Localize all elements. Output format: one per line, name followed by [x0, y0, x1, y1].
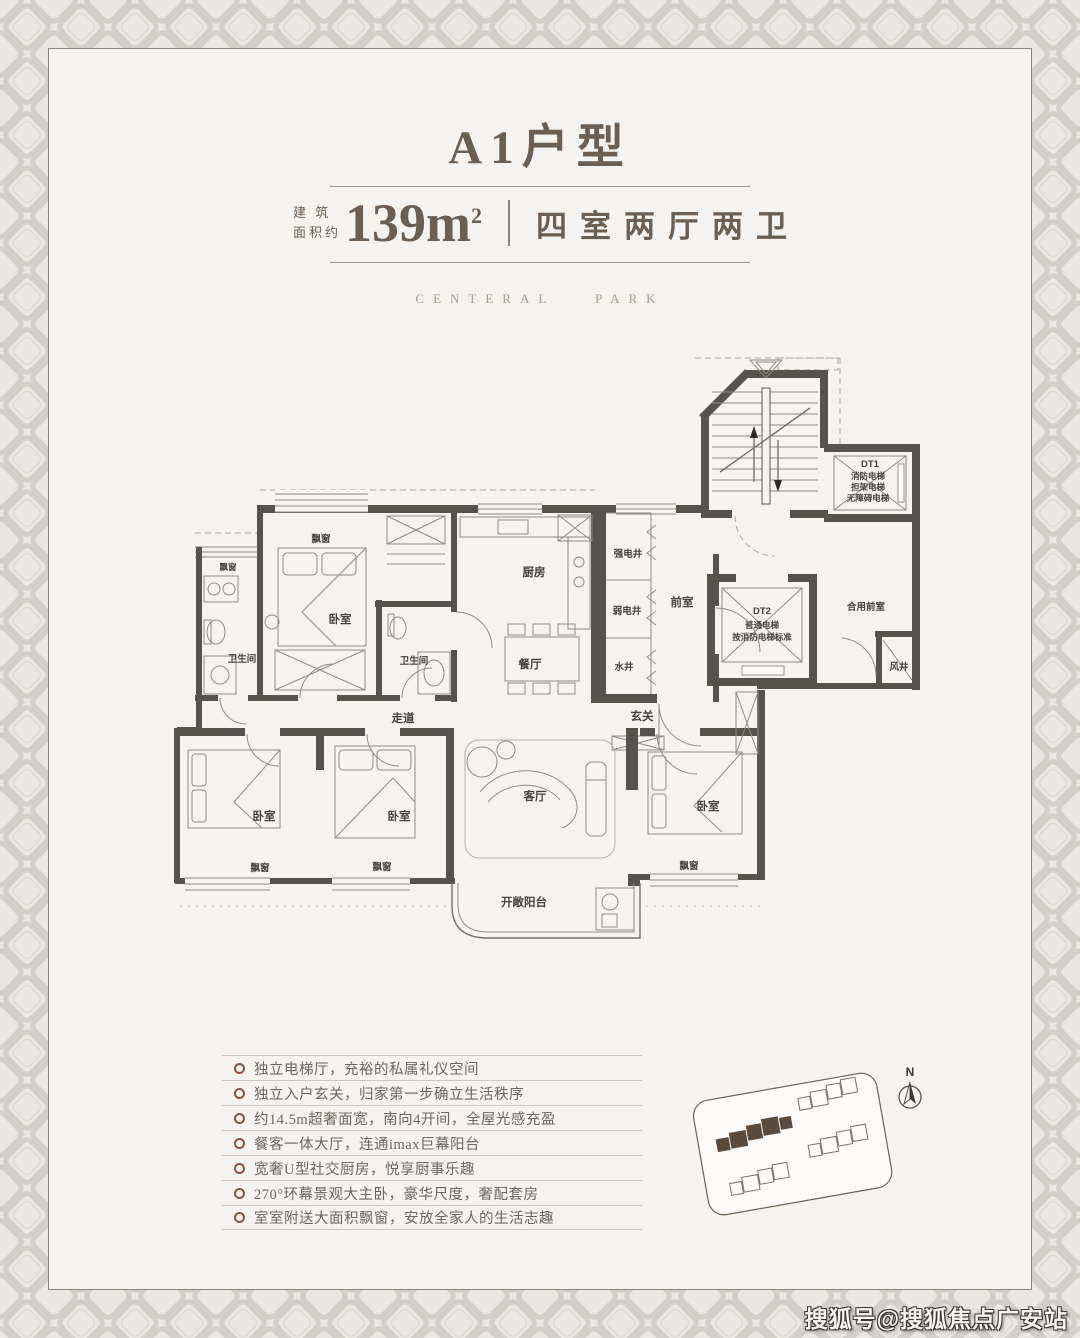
- svg-text:无障碍电梯: 无障碍电梯: [846, 493, 890, 503]
- svg-text:风井: 风井: [889, 661, 909, 673]
- feature-item: 独立入户玄关，归家第一步确立生活秩序: [222, 1080, 642, 1105]
- site-plan: N: [688, 1056, 943, 1236]
- watermark: 搜狐号@搜狐焦点广安站: [805, 1300, 1068, 1334]
- svg-text:按消防电梯标准: 按消防电梯标准: [732, 632, 792, 642]
- feature-item: 宽奢U型社交厨房，悦享厨事乐趣: [222, 1155, 642, 1180]
- bullet-ring-icon: [234, 1212, 245, 1223]
- svg-text:餐厅: 餐厅: [518, 657, 542, 671]
- bullet-ring-icon: [234, 1113, 245, 1124]
- floorplan-drawing: DT1 消防电梯 担架电梯 无障碍电梯 DT2 普通电梯 按消防电梯标准 合用前…: [150, 350, 930, 970]
- svg-text:卧室: 卧室: [697, 799, 720, 813]
- svg-text:担架电梯: 担架电梯: [851, 482, 886, 492]
- feature-item: 270°环幕景观大主卧，豪华尺度，奢配套房: [222, 1180, 642, 1205]
- svg-text:飘窗: 飘窗: [219, 562, 237, 572]
- svg-text:飘窗: 飘窗: [371, 861, 392, 873]
- svg-text:弱电井: 弱电井: [613, 605, 642, 617]
- svg-text:开敞阳台: 开敞阳台: [501, 895, 547, 909]
- bullet-ring-icon: [234, 1163, 245, 1174]
- divider-line-bottom: [330, 262, 750, 263]
- svg-text:前室: 前室: [671, 595, 694, 609]
- svg-text:卧室: 卧室: [329, 612, 352, 626]
- feature-item: 室室附送大面积飘窗，安放全家人的生活志趣: [222, 1205, 642, 1230]
- feature-item: 餐客一体大厅，连通imax巨幕阳台: [222, 1130, 642, 1155]
- svg-text:玄关: 玄关: [631, 709, 654, 723]
- vertical-divider: [508, 200, 510, 246]
- bullet-ring-icon: [234, 1188, 245, 1199]
- svg-text:飘窗: 飘窗: [249, 862, 270, 874]
- svg-text:飘窗: 飘窗: [678, 860, 699, 872]
- svg-text:厨房: 厨房: [523, 565, 546, 579]
- svg-text:消防电梯: 消防电梯: [851, 471, 886, 481]
- area-prefix-label: 建 筑 面积约: [293, 203, 341, 243]
- bullet-ring-icon: [234, 1063, 245, 1074]
- svg-text:客厅: 客厅: [523, 789, 547, 803]
- svg-text:DT2: DT2: [753, 606, 771, 617]
- area-value: 139m2: [345, 196, 482, 250]
- area-superscript: 2: [471, 203, 482, 228]
- bullet-ring-icon: [234, 1138, 245, 1149]
- svg-text:走道: 走道: [391, 711, 415, 725]
- svg-text:N: N: [906, 1065, 915, 1079]
- poster: A1户型 建 筑 面积约 139m2 四室两厅两卫 CENTERAL PARK: [0, 0, 1080, 1338]
- svg-text:水井: 水井: [614, 661, 634, 673]
- feature-list: 独立电梯厅，充裕的私属礼仪空间 独立入户玄关，归家第一步确立生活秩序 约14.5…: [222, 1055, 642, 1230]
- svg-text:卫生间: 卫生间: [400, 655, 429, 667]
- area-subtitle: 建 筑 面积约 139m2 四室两厅两卫: [0, 196, 1080, 250]
- north-compass: N: [899, 1065, 921, 1108]
- divider-line-top: [330, 186, 750, 187]
- page-title: A1户型: [0, 108, 1080, 177]
- svg-text:DT1: DT1: [861, 459, 880, 470]
- svg-text:卫生间: 卫生间: [228, 653, 257, 665]
- svg-text:卧室: 卧室: [253, 809, 276, 823]
- svg-text:合用前室: 合用前室: [847, 601, 886, 613]
- feature-item: 约14.5m超奢面宽，南向4开间，全屋光感充盈: [222, 1105, 642, 1130]
- brand-label: CENTERAL PARK: [0, 291, 1080, 307]
- feature-item: 独立电梯厅，充裕的私属礼仪空间: [222, 1055, 642, 1080]
- svg-text:飘窗: 飘窗: [310, 533, 331, 545]
- layout-label: 四室两厅两卫: [536, 201, 800, 246]
- svg-text:卧室: 卧室: [388, 809, 411, 823]
- svg-text:强电井: 强电井: [614, 548, 643, 560]
- bullet-ring-icon: [234, 1088, 245, 1099]
